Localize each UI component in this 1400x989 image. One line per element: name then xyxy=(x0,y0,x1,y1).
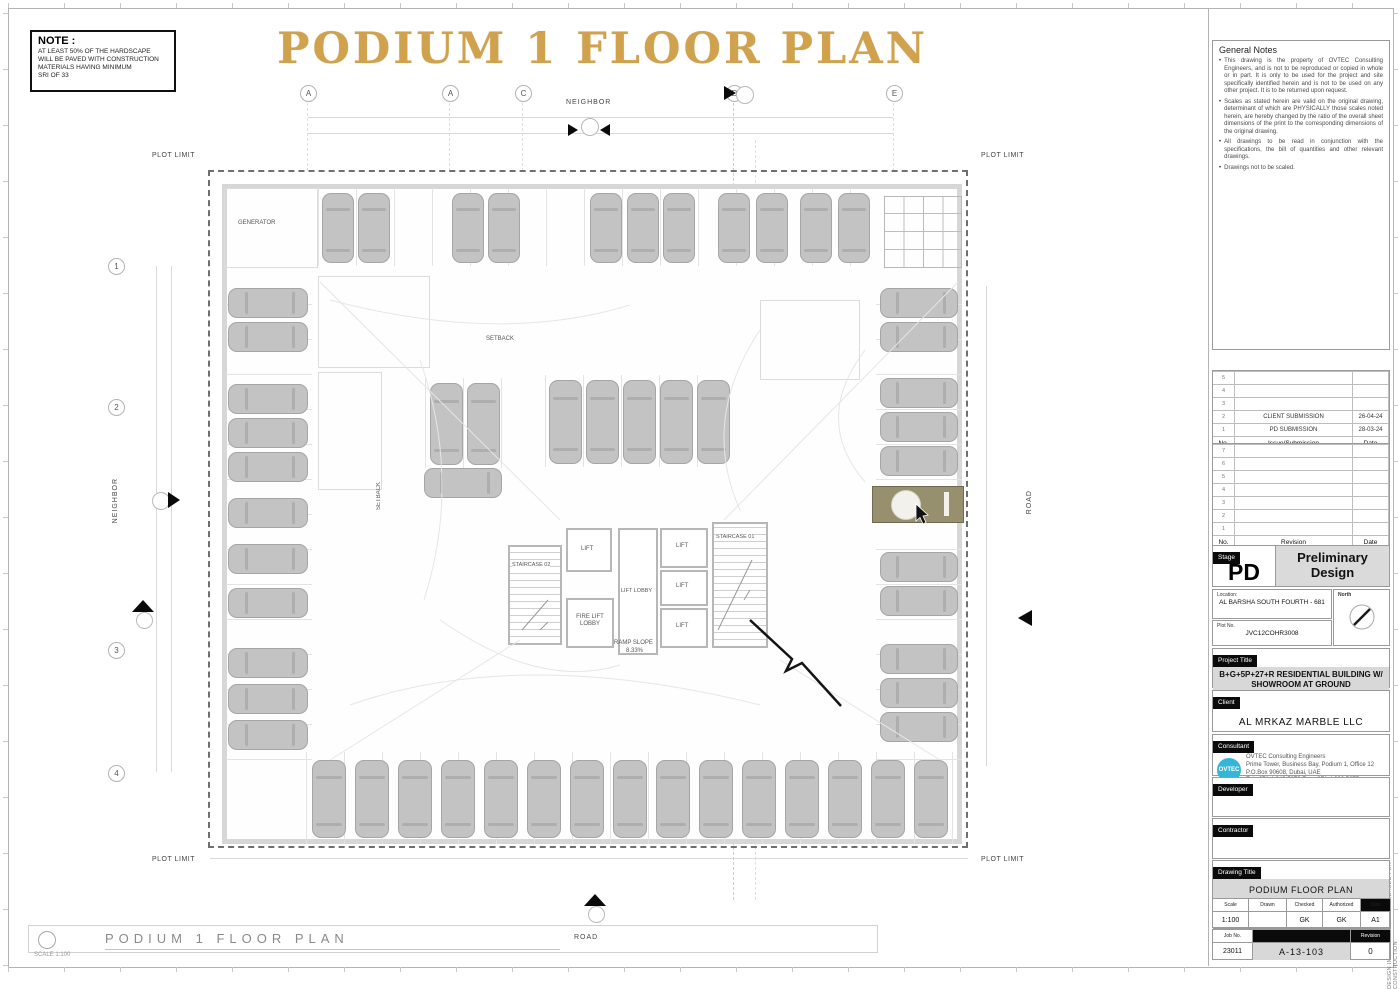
section-marker xyxy=(136,612,153,629)
submission-row-text: PD SUBMISSION xyxy=(1235,423,1353,436)
submission-row-no: 2 xyxy=(1213,410,1235,423)
client-box: Client AL MRKAZ MARBLE LLC xyxy=(1212,690,1390,732)
note-line: MATERIALS HAVING MINIMUM xyxy=(38,64,168,72)
consultant-line: Prime Tower, Business Bay, Podium 1, Off… xyxy=(1246,762,1374,770)
car-icon xyxy=(358,193,390,263)
generator-room xyxy=(224,188,318,268)
revision-row-date xyxy=(1353,496,1389,509)
client-value: AL MRKAZ MARBLE LLC xyxy=(1213,709,1389,735)
north-compass-icon xyxy=(1345,600,1379,634)
drawing-number: A-13-103 xyxy=(1253,943,1351,960)
car-icon xyxy=(880,644,958,674)
car-icon xyxy=(880,712,958,742)
checked-label: Checked xyxy=(1287,899,1323,912)
car-icon xyxy=(880,678,958,708)
grid-bubble-top: E xyxy=(886,85,903,102)
revision-row-no: 5 xyxy=(1213,470,1235,483)
car-icon xyxy=(228,720,308,750)
car-icon xyxy=(742,760,776,838)
scale-value: 1:100 xyxy=(1213,912,1249,929)
revision-row-text xyxy=(1235,457,1353,470)
grid-bubble-left: 1 xyxy=(108,258,125,275)
contractor-box: Contractor xyxy=(1212,818,1390,859)
general-notes-box: General Notes •This drawing is the prope… xyxy=(1212,40,1390,350)
consultant-line: OVTEC Consulting Engineers xyxy=(1246,754,1374,762)
developer-box: Developer xyxy=(1212,777,1390,817)
plot-no-value: JVC12COHR3008 xyxy=(1213,630,1331,637)
car-icon xyxy=(880,586,958,616)
revision-row-date xyxy=(1353,522,1389,535)
car-icon xyxy=(699,760,733,838)
location-value: AL BARSHA SOUTH FOURTH - 681 xyxy=(1213,599,1331,606)
revision-row-date xyxy=(1353,470,1389,483)
car-icon xyxy=(228,498,308,528)
car-icon xyxy=(228,648,308,678)
grid-bubble-top: C xyxy=(515,85,532,102)
page-title: PODIUM 1 FLOOR PLAN xyxy=(0,24,1205,74)
note-title: NOTE : xyxy=(38,35,168,47)
car-icon xyxy=(828,760,862,838)
fire-lift-lobby-label: FIRE LIFT LOBBY xyxy=(572,614,608,628)
lift-label: LIFT xyxy=(676,543,688,549)
grid-bubble-top: A xyxy=(300,85,317,102)
lift-label: LIFT xyxy=(581,546,593,552)
car-icon xyxy=(228,588,308,618)
revision-row-date xyxy=(1353,483,1389,496)
job-no-value: 23011 xyxy=(1213,943,1253,960)
revision-table: 7 6 5 4 3 2 1 No. Revision Date xyxy=(1212,443,1390,549)
car-icon xyxy=(488,193,520,263)
detail-circle-icon xyxy=(38,931,56,949)
car-icon xyxy=(228,452,308,482)
checked-value: GK xyxy=(1287,912,1323,929)
neighbor-label-top: NEIGHBOR xyxy=(566,99,611,106)
revision-row-no: 4 xyxy=(1213,483,1235,496)
submission-row-date: 26-04-24 xyxy=(1353,410,1389,423)
car-icon xyxy=(228,418,308,448)
general-note: Scales as stated herein are valid on the… xyxy=(1224,99,1383,137)
staircase-02-label: STAIRCASE 02 xyxy=(512,562,550,568)
authorized-label: Authorized xyxy=(1323,899,1361,912)
grid-line xyxy=(893,103,894,171)
car-icon xyxy=(467,383,500,465)
general-note: This drawing is the property of OVTEC Co… xyxy=(1224,58,1383,96)
grid-bubble-left: 4 xyxy=(108,765,125,782)
car-icon xyxy=(452,193,484,263)
grid-bubble-left: 2 xyxy=(108,399,125,416)
submission-row-text xyxy=(1235,397,1353,410)
submission-row-no: 3 xyxy=(1213,397,1235,410)
submission-row-date: 28-03-24 xyxy=(1353,423,1389,436)
revision-row-no: 6 xyxy=(1213,457,1235,470)
plot-limit-label: PLOT LIMIT xyxy=(981,856,1024,863)
car-icon xyxy=(660,380,693,464)
ramp-slope-value: 8.33% xyxy=(626,648,643,654)
general-note: Drawings not to be scaled. xyxy=(1224,165,1295,173)
revision-row-no: 1 xyxy=(1213,522,1235,535)
revision-row-no: 7 xyxy=(1213,444,1235,457)
car-icon xyxy=(623,380,656,464)
project-title-label: Project Title xyxy=(1213,655,1257,667)
note-line: SRI OF 33 xyxy=(38,72,168,80)
car-icon xyxy=(613,760,647,838)
revision-row-date xyxy=(1353,444,1389,457)
car-icon xyxy=(880,288,958,318)
meta-table: Scale Drawn Checked Authorized Size 1:10… xyxy=(1212,898,1390,928)
car-icon xyxy=(880,378,958,408)
room-outline xyxy=(318,372,382,490)
location-box: Location: AL BARSHA SOUTH FOURTH - 681 xyxy=(1212,589,1332,619)
setback-label: SETBACK xyxy=(376,482,382,510)
submission-row-text xyxy=(1235,371,1353,384)
grid-line xyxy=(307,103,308,171)
revision-row-date xyxy=(1353,509,1389,522)
project-title-box: Project Title B+G+5P+27+R RESIDENTIAL BU… xyxy=(1212,648,1390,688)
job-black-bar xyxy=(1253,930,1351,943)
location-label: Location: xyxy=(1217,592,1331,598)
bullet-icon: • xyxy=(1219,58,1221,96)
car-icon xyxy=(322,193,354,263)
car-icon xyxy=(430,383,463,465)
car-icon xyxy=(398,760,432,838)
car-icon xyxy=(586,380,619,464)
puzzle-parking-grid xyxy=(884,196,962,268)
general-note: All drawings to be read in conjunction w… xyxy=(1224,139,1383,162)
room-outline xyxy=(318,276,430,368)
car-icon xyxy=(718,193,750,263)
section-arrow xyxy=(568,124,578,136)
dimension-line xyxy=(308,117,893,118)
submission-row-date xyxy=(1353,397,1389,410)
car-icon xyxy=(756,193,788,263)
revision-row-text xyxy=(1235,470,1353,483)
footer-scale: SCALE 1:100 xyxy=(34,952,70,958)
grid-line xyxy=(449,103,450,171)
plot-limit-label: PLOT LIMIT xyxy=(152,856,195,863)
turning-disc xyxy=(891,490,921,520)
plot-no-label: Plot No. xyxy=(1217,623,1331,629)
car-icon xyxy=(627,193,659,263)
revision-row-text xyxy=(1235,496,1353,509)
note-line: WILL BE PAVED WITH CONSTRUCTION xyxy=(38,56,168,64)
car-icon xyxy=(871,760,905,838)
grid-bubble-left: 3 xyxy=(108,642,125,659)
car-icon xyxy=(785,760,819,838)
car-icon xyxy=(570,760,604,838)
car-icon xyxy=(441,760,475,838)
scale-label: Scale xyxy=(1213,899,1249,912)
grid-bubble-top: A xyxy=(442,85,459,102)
staircase-01-label: STAIRCASE 01 xyxy=(716,534,754,540)
submission-row-no: 4 xyxy=(1213,384,1235,397)
car-icon xyxy=(880,552,958,582)
stall-bar xyxy=(944,492,949,516)
drawing-title-label: Drawing Title xyxy=(1213,867,1261,879)
section-arrow xyxy=(584,894,606,906)
section-arrow xyxy=(132,600,154,612)
ruler-left xyxy=(3,8,8,966)
car-icon xyxy=(228,322,308,352)
north-arrow-marker xyxy=(1018,610,1032,626)
submission-row-text xyxy=(1235,384,1353,397)
staircase-02 xyxy=(508,545,562,645)
consultant-label: Consultant xyxy=(1213,741,1254,753)
section-arrow xyxy=(168,492,180,508)
car-icon xyxy=(800,193,832,263)
car-icon xyxy=(838,193,870,263)
submission-row-no: 1 xyxy=(1213,423,1235,436)
footer-title: PODIUM 1 FLOOR PLAN xyxy=(105,931,349,946)
lift-label: LIFT xyxy=(676,583,688,589)
staircase-01 xyxy=(712,522,768,648)
submission-row-date xyxy=(1353,384,1389,397)
dimension-line xyxy=(210,858,968,859)
revision-row-no: 3 xyxy=(1213,496,1235,509)
plot-limit-label: PLOT LIMIT xyxy=(981,152,1024,159)
car-icon xyxy=(697,380,730,464)
revision-row-no: 2 xyxy=(1213,509,1235,522)
section-marker xyxy=(581,118,599,136)
size-value: A1 xyxy=(1361,912,1391,929)
revision-row-text xyxy=(1235,509,1353,522)
revision-row-text xyxy=(1235,444,1353,457)
stage-name: Preliminary Design xyxy=(1276,546,1389,586)
car-icon xyxy=(549,380,582,464)
bullet-icon: • xyxy=(1219,165,1221,173)
section-arrow xyxy=(600,124,610,136)
revision-value: 0 xyxy=(1351,943,1391,960)
general-notes-title: General Notes xyxy=(1219,45,1383,55)
car-icon xyxy=(590,193,622,263)
car-icon xyxy=(228,684,308,714)
car-icon xyxy=(228,288,308,318)
developer-label: Developer xyxy=(1213,784,1253,796)
drawing-title-box: Drawing Title PODIUM FLOOR PLAN xyxy=(1212,860,1390,898)
dimension-line xyxy=(986,286,987,766)
stage-box: Stage PD Preliminary Design xyxy=(1212,545,1390,587)
dimension-line xyxy=(171,266,172,772)
north-label: North xyxy=(1338,592,1389,598)
authorized-value: GK xyxy=(1323,912,1361,929)
titleblock-divider xyxy=(1208,8,1209,966)
bullet-icon: • xyxy=(1219,99,1221,137)
car-icon xyxy=(663,193,695,263)
bullet-icon: • xyxy=(1219,139,1221,162)
car-icon xyxy=(880,446,958,476)
car-icon xyxy=(228,384,308,414)
road-label-right: ROAD xyxy=(1026,490,1033,514)
car-icon xyxy=(527,760,561,838)
car-icon xyxy=(484,760,518,838)
plot-no-box: Plot No. JVC12COHR3008 xyxy=(1212,620,1332,646)
neighbor-label-left: NEIGHBOR xyxy=(112,478,119,523)
contractor-label: Contractor xyxy=(1213,825,1253,837)
revision-label: Revision xyxy=(1351,930,1391,943)
consultant-box: Consultant OVTEC OVTEC Consulting Engine… xyxy=(1212,734,1390,776)
ruler-bottom xyxy=(8,967,1392,972)
section-arrow xyxy=(724,86,736,100)
car-icon xyxy=(656,760,690,838)
job-no-label: Job No. xyxy=(1213,930,1253,943)
drawn-value xyxy=(1249,912,1287,929)
revision-row-date xyxy=(1353,457,1389,470)
ramp-slope-label: RAMP SLOPE xyxy=(614,640,653,646)
stage-code: PD xyxy=(1213,559,1275,586)
ruler-top xyxy=(8,3,1392,8)
generator-label: GENERATOR xyxy=(238,220,275,226)
highlighted-parking-stall[interactable] xyxy=(872,486,964,523)
ruler-right xyxy=(1393,8,1398,966)
room-outline xyxy=(760,300,860,380)
job-row: Job No. Revision 23011 A-13-103 0 xyxy=(1212,929,1390,960)
revision-row-text xyxy=(1235,522,1353,535)
submission-row-date xyxy=(1353,371,1389,384)
car-icon xyxy=(312,760,346,838)
note-box: NOTE : AT LEAST 50% OF THE HARDSCAPE WIL… xyxy=(30,30,176,92)
revision-row-text xyxy=(1235,483,1353,496)
car-icon xyxy=(914,760,948,838)
section-marker xyxy=(736,86,754,104)
car-icon xyxy=(355,760,389,838)
dimension-line xyxy=(156,266,157,772)
note-line: AT LEAST 50% OF THE HARDSCAPE xyxy=(38,48,168,56)
car-icon xyxy=(880,412,958,442)
submission-table: 5 4 3 2CLIENT SUBMISSION26-04-24 1PD SUB… xyxy=(1212,370,1390,450)
setback-label: SETBACK xyxy=(486,336,514,342)
lift-label: LIFT xyxy=(676,623,688,629)
section-marker xyxy=(588,906,605,923)
plot-limit-label: PLOT LIMIT xyxy=(152,152,195,159)
drawing-sheet: PODIUM 1 FLOOR PLAN NOTE : AT LEAST 50% … xyxy=(0,0,1400,989)
lift-lobby-label: LIFT LOBBY xyxy=(621,588,652,594)
car-icon xyxy=(228,544,308,574)
drawn-label: Drawn xyxy=(1249,899,1287,912)
car-icon xyxy=(424,468,502,498)
size-label: Size xyxy=(1361,899,1391,912)
submission-row-text: CLIENT SUBMISSION xyxy=(1235,410,1353,423)
car-icon xyxy=(880,322,958,352)
north-box: North xyxy=(1333,589,1390,646)
submission-row-no: 5 xyxy=(1213,371,1235,384)
footer-underline xyxy=(105,949,560,950)
client-label: Client xyxy=(1213,697,1240,709)
grid-line xyxy=(522,103,523,171)
